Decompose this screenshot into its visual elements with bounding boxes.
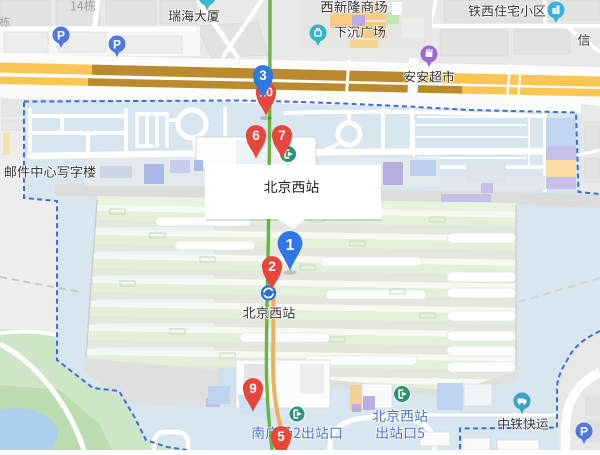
svg-text:1: 1 [286, 237, 295, 254]
svg-text:P: P [580, 425, 588, 439]
svg-text:6: 6 [252, 128, 260, 143]
svg-text:2: 2 [268, 259, 276, 274]
svg-text:3: 3 [259, 68, 267, 83]
svg-text:P: P [57, 29, 65, 43]
svg-text:5: 5 [277, 429, 285, 444]
svg-text:P: P [113, 38, 121, 52]
svg-text:9: 9 [249, 381, 257, 396]
svg-text:7: 7 [278, 128, 286, 143]
